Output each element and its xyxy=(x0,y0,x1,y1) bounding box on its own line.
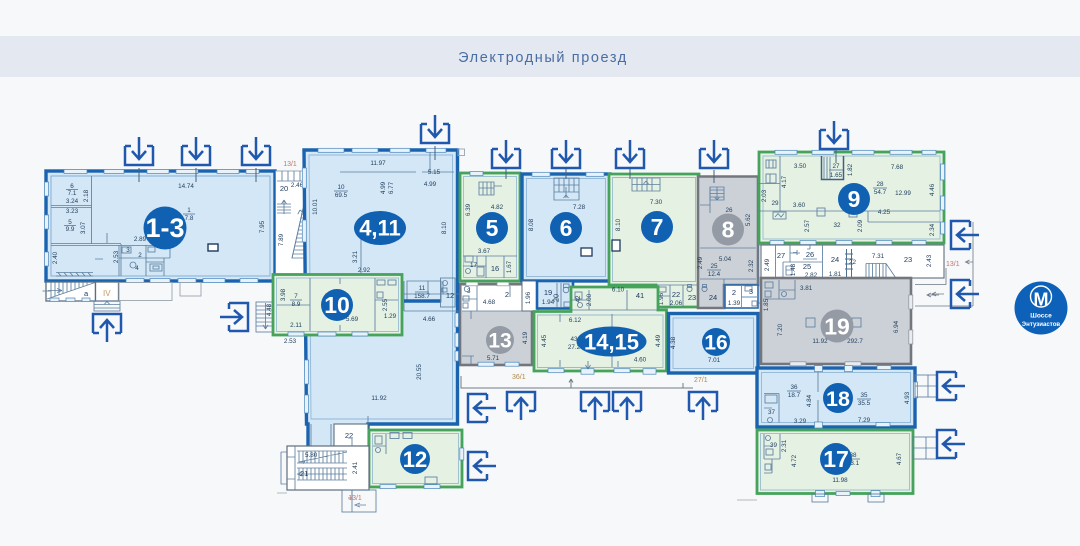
svg-text:2: 2 xyxy=(505,290,509,299)
svg-text:2.46: 2.46 xyxy=(291,182,304,189)
svg-text:25: 25 xyxy=(710,263,718,270)
svg-text:17: 17 xyxy=(823,446,849,472)
svg-text:4.66: 4.66 xyxy=(423,316,436,323)
svg-text:5.15: 5.15 xyxy=(428,169,441,176)
svg-text:16: 16 xyxy=(491,264,499,273)
svg-text:1.29: 1.29 xyxy=(384,313,397,320)
svg-text:3.21: 3.21 xyxy=(352,250,359,263)
svg-text:2.09: 2.09 xyxy=(857,219,864,232)
svg-text:54.7: 54.7 xyxy=(874,189,887,196)
svg-text:18.7: 18.7 xyxy=(788,392,801,399)
svg-text:14,15: 14,15 xyxy=(584,330,639,355)
svg-text:39: 39 xyxy=(770,442,778,449)
svg-text:2.31: 2.31 xyxy=(781,439,788,452)
svg-text:20: 20 xyxy=(552,294,561,302)
svg-text:19: 19 xyxy=(824,314,850,340)
svg-text:2.11: 2.11 xyxy=(290,322,302,329)
svg-text:7.20: 7.20 xyxy=(777,323,784,336)
svg-text:2.92: 2.92 xyxy=(358,267,371,274)
svg-text:2: 2 xyxy=(138,252,142,259)
svg-text:7.89: 7.89 xyxy=(278,233,285,246)
svg-text:17: 17 xyxy=(470,262,478,269)
svg-text:2: 2 xyxy=(732,288,736,297)
svg-text:4.72: 4.72 xyxy=(791,454,798,467)
svg-text:2.34: 2.34 xyxy=(929,223,936,236)
svg-text:1.82: 1.82 xyxy=(847,163,854,176)
svg-text:24: 24 xyxy=(709,293,717,302)
svg-text:18: 18 xyxy=(826,387,850,411)
svg-text:6.77: 6.77 xyxy=(388,181,395,194)
svg-text:4.17: 4.17 xyxy=(781,175,788,188)
svg-text:11: 11 xyxy=(419,285,426,292)
svg-text:23: 23 xyxy=(904,255,912,264)
svg-text:8.9: 8.9 xyxy=(292,301,301,308)
svg-text:2.49: 2.49 xyxy=(764,258,771,271)
svg-text:2.43: 2.43 xyxy=(926,254,933,267)
svg-text:13/1: 13/1 xyxy=(946,261,960,268)
svg-text:7.30: 7.30 xyxy=(650,199,663,206)
svg-text:14.74: 14.74 xyxy=(178,183,194,190)
svg-text:28: 28 xyxy=(876,181,884,188)
svg-text:37: 37 xyxy=(768,409,776,416)
svg-text:5.80: 5.80 xyxy=(305,452,318,459)
svg-text:23: 23 xyxy=(688,293,696,302)
svg-text:Электродный проезд: Электродный проезд xyxy=(458,50,628,66)
svg-text:3.29: 3.29 xyxy=(794,418,807,425)
svg-text:4.60: 4.60 xyxy=(634,357,647,364)
svg-text:7.1: 7.1 xyxy=(68,190,77,197)
svg-text:16: 16 xyxy=(704,332,727,355)
svg-text:27: 27 xyxy=(832,163,840,170)
svg-text:2.55: 2.55 xyxy=(382,298,389,311)
svg-text:3: 3 xyxy=(126,247,130,254)
svg-text:22: 22 xyxy=(672,290,680,299)
svg-text:13: 13 xyxy=(488,330,511,353)
svg-text:6.10: 6.10 xyxy=(612,287,625,294)
svg-text:6.12: 6.12 xyxy=(569,317,582,324)
svg-text:6: 6 xyxy=(560,215,573,241)
svg-text:7.01: 7.01 xyxy=(708,357,721,364)
svg-text:36: 36 xyxy=(790,384,798,391)
svg-text:4.67: 4.67 xyxy=(896,452,903,465)
svg-text:7.8: 7.8 xyxy=(185,215,194,222)
svg-text:Шоссе: Шоссе xyxy=(1030,313,1052,320)
svg-text:26: 26 xyxy=(725,207,733,214)
svg-text:4.99: 4.99 xyxy=(380,181,387,194)
svg-text:1.48: 1.48 xyxy=(790,263,797,276)
svg-text:4,11: 4,11 xyxy=(359,216,401,241)
svg-text:3.98: 3.98 xyxy=(280,288,287,301)
svg-text:20.55: 20.55 xyxy=(416,364,423,380)
svg-text:2.00: 2.00 xyxy=(586,293,593,306)
svg-text:12.99: 12.99 xyxy=(895,190,911,197)
svg-text:3.24: 3.24 xyxy=(66,198,79,205)
svg-text:8.10: 8.10 xyxy=(441,221,448,234)
svg-text:1-3: 1-3 xyxy=(145,213,184,243)
svg-text:20: 20 xyxy=(280,184,288,193)
svg-text:9: 9 xyxy=(848,186,861,212)
svg-text:3: 3 xyxy=(467,288,471,295)
svg-text:4.84: 4.84 xyxy=(806,394,813,407)
svg-text:13/1: 13/1 xyxy=(348,495,362,502)
svg-text:21: 21 xyxy=(300,469,308,478)
svg-text:26: 26 xyxy=(806,250,814,259)
svg-text:7.28: 7.28 xyxy=(573,204,586,211)
svg-text:4.46: 4.46 xyxy=(929,183,936,196)
svg-text:11.97: 11.97 xyxy=(370,160,386,167)
svg-text:4.82: 4.82 xyxy=(491,204,504,211)
svg-text:4.99: 4.99 xyxy=(424,181,437,188)
svg-text:3: 3 xyxy=(749,287,753,296)
svg-text:7.95: 7.95 xyxy=(259,220,266,233)
svg-text:2.41: 2.41 xyxy=(352,461,359,474)
svg-text:М: М xyxy=(1034,290,1049,310)
svg-text:12: 12 xyxy=(403,447,427,472)
svg-text:4.49: 4.49 xyxy=(655,334,662,347)
svg-text:5: 5 xyxy=(486,215,499,241)
svg-text:2.53: 2.53 xyxy=(113,250,120,263)
svg-text:41: 41 xyxy=(636,291,644,300)
svg-text:35.5: 35.5 xyxy=(858,400,871,407)
svg-text:3.67: 3.67 xyxy=(478,248,491,255)
svg-text:5.04: 5.04 xyxy=(719,256,732,263)
svg-text:32: 32 xyxy=(833,222,841,229)
svg-text:2.49: 2.49 xyxy=(697,256,704,269)
svg-text:2.03: 2.03 xyxy=(761,189,768,202)
svg-text:2.40: 2.40 xyxy=(52,251,59,264)
svg-text:158.7: 158.7 xyxy=(414,293,430,300)
svg-text:1.96: 1.96 xyxy=(525,291,532,304)
svg-text:1.85: 1.85 xyxy=(763,298,770,311)
svg-text:24: 24 xyxy=(831,255,839,264)
svg-text:3.81: 3.81 xyxy=(800,285,813,292)
svg-text:69.5: 69.5 xyxy=(335,192,348,199)
svg-text:22: 22 xyxy=(849,259,857,266)
svg-text:27/1: 27/1 xyxy=(694,377,708,384)
svg-text:4.68: 4.68 xyxy=(483,299,496,306)
svg-text:1.67: 1.67 xyxy=(506,260,513,273)
svg-text:29: 29 xyxy=(771,200,779,207)
svg-text:12.4: 12.4 xyxy=(708,271,721,278)
svg-text:7.31: 7.31 xyxy=(872,253,885,260)
svg-text:7.68: 7.68 xyxy=(891,164,904,171)
svg-text:13/1: 13/1 xyxy=(283,161,297,168)
svg-text:35: 35 xyxy=(860,392,868,399)
svg-text:7.29: 7.29 xyxy=(858,417,871,424)
svg-text:10: 10 xyxy=(337,184,345,191)
svg-text:3.23: 3.23 xyxy=(66,208,79,215)
svg-text:6.39: 6.39 xyxy=(465,203,472,216)
svg-text:4.93: 4.93 xyxy=(904,391,911,404)
svg-text:5.62: 5.62 xyxy=(745,213,752,226)
svg-text:3.07: 3.07 xyxy=(80,221,87,234)
svg-text:2.53: 2.53 xyxy=(284,338,297,345)
svg-text:3.60: 3.60 xyxy=(793,202,806,209)
svg-text:4.48: 4.48 xyxy=(266,303,273,316)
svg-text:4.19: 4.19 xyxy=(522,331,529,344)
svg-text:Энтузиастов: Энтузиастов xyxy=(1022,321,1061,328)
svg-text:10: 10 xyxy=(324,292,350,318)
svg-text:2.32: 2.32 xyxy=(748,259,755,272)
svg-text:4.25: 4.25 xyxy=(878,209,891,216)
svg-text:6.94: 6.94 xyxy=(893,320,900,333)
svg-text:6: 6 xyxy=(70,183,74,190)
svg-text:11.98: 11.98 xyxy=(832,477,848,484)
svg-text:1.65: 1.65 xyxy=(830,172,843,179)
svg-text:8.10: 8.10 xyxy=(615,218,622,231)
svg-text:36/1: 36/1 xyxy=(512,374,526,381)
svg-text:12: 12 xyxy=(446,291,454,300)
svg-text:5.71: 5.71 xyxy=(487,355,500,362)
svg-text:42: 42 xyxy=(575,295,582,303)
svg-text:3.50: 3.50 xyxy=(794,163,807,170)
svg-text:IV: IV xyxy=(103,289,111,298)
svg-text:2.57: 2.57 xyxy=(804,219,811,232)
svg-text:7: 7 xyxy=(294,293,298,300)
svg-text:7: 7 xyxy=(651,214,664,240)
svg-text:10.01: 10.01 xyxy=(312,199,319,215)
svg-text:1.39: 1.39 xyxy=(728,300,741,307)
svg-text:1: 1 xyxy=(187,207,191,214)
svg-text:2.06: 2.06 xyxy=(670,300,683,307)
svg-text:4.45: 4.45 xyxy=(541,334,548,347)
svg-text:25: 25 xyxy=(803,262,811,271)
svg-text:2.18: 2.18 xyxy=(83,189,90,202)
svg-text:5: 5 xyxy=(68,219,72,226)
svg-text:4: 4 xyxy=(135,265,139,272)
svg-text:8: 8 xyxy=(722,217,735,243)
svg-text:11.92: 11.92 xyxy=(371,395,387,402)
svg-text:27: 27 xyxy=(777,251,785,260)
svg-text:9.9: 9.9 xyxy=(66,226,75,233)
svg-text:4.38: 4.38 xyxy=(670,336,677,349)
svg-text:8.08: 8.08 xyxy=(528,218,535,231)
